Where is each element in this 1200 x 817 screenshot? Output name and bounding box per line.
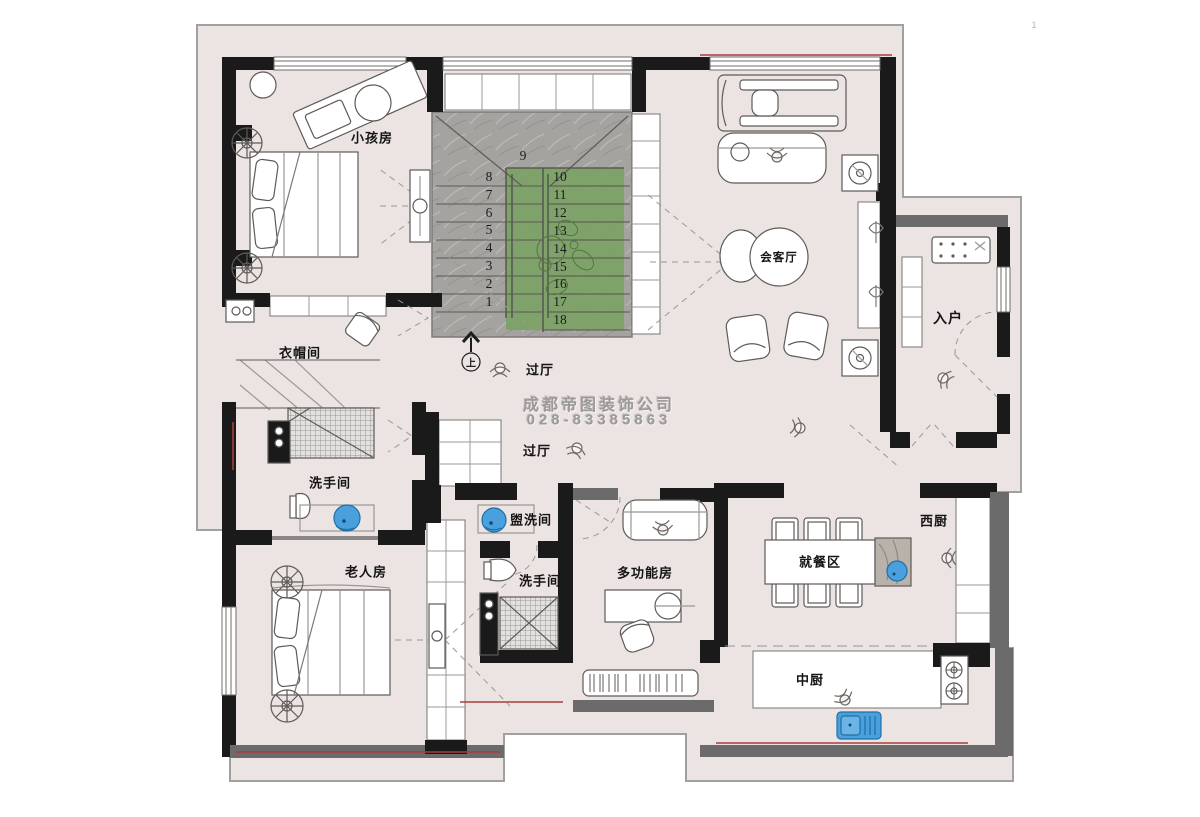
staircase — [432, 112, 632, 371]
stove — [941, 656, 968, 704]
window-entry-right — [997, 267, 1010, 312]
stair-number: 3 — [486, 258, 493, 274]
stair-number: 10 — [553, 169, 567, 185]
kids-tv — [410, 170, 430, 242]
stair-number: 2 — [486, 276, 493, 292]
room-label-bathroom-middle: 洗手间 — [519, 571, 561, 590]
speaker-icon — [842, 155, 878, 191]
room-label-west-kitchen: 西厨 — [920, 511, 948, 530]
washer-icon — [226, 300, 254, 322]
stair-number: 9 — [520, 148, 527, 164]
stair-number: 4 — [486, 240, 493, 256]
kids-chair — [355, 85, 391, 121]
room-label-multifunction: 多功能房 — [617, 563, 673, 582]
stair-number: 16 — [553, 276, 567, 292]
ceiling-fan-icon — [271, 690, 303, 722]
stair-number: 7 — [486, 187, 493, 203]
speaker-icon — [842, 340, 878, 376]
stair-number: 12 — [553, 205, 567, 221]
room-label-hall-upper: 过厅 — [526, 360, 554, 379]
kids-stool — [250, 72, 276, 98]
stair-up-label: 上 — [466, 355, 476, 370]
room-label-cloakroom: 衣帽间 — [279, 343, 321, 362]
stair-number: 5 — [486, 222, 493, 238]
stair-number: 11 — [554, 187, 567, 203]
room-label-chinese-kitchen: 中厨 — [796, 670, 824, 689]
room-label-entry: 入户 — [933, 308, 963, 328]
stair-number: 6 — [486, 205, 493, 221]
stair-number: 14 — [553, 241, 567, 257]
elder-tv — [429, 604, 445, 668]
vanity-left — [268, 421, 290, 463]
entry-bench — [932, 237, 990, 263]
ceiling-fan-icon — [232, 253, 262, 283]
dining-island — [875, 538, 911, 586]
ceiling-fan-icon — [232, 128, 262, 158]
window-elder-left — [222, 607, 236, 695]
corner-mark: 1 — [1031, 20, 1036, 30]
kids-bed — [250, 152, 358, 257]
kitchen-sink-blue — [837, 712, 881, 739]
room-label-washroom: 盥洗间 — [510, 510, 552, 529]
elder-bed — [272, 585, 390, 695]
room-label-bathroom-left: 洗手间 — [309, 473, 351, 492]
room-label-hall-lower: 过厅 — [523, 441, 551, 460]
basin-blue-left — [334, 505, 360, 531]
basin-blue-washroom — [482, 508, 506, 532]
multi-desk — [605, 590, 695, 622]
stair-number: 18 — [553, 312, 567, 328]
stair-number: 13 — [553, 223, 567, 239]
stair-number: 17 — [553, 294, 567, 310]
floorplan-page: 小孩房 会客厅 入户 衣帽间 过厅 过厅 洗手间 老人房 盥洗间 洗手间 多功能… — [0, 0, 1200, 817]
room-label-dining: 就餐区 — [799, 552, 841, 571]
ceiling-fan-icon — [271, 566, 303, 598]
stair-number: 8 — [486, 169, 493, 185]
room-label-elder-room: 老人房 — [345, 562, 387, 581]
window-living-top — [710, 57, 880, 70]
room-label-kids-room: 小孩房 — [351, 128, 393, 147]
living-armchair — [725, 313, 771, 362]
window-kids-top — [274, 57, 406, 70]
stair-number: 15 — [553, 259, 567, 275]
watermark-phone: 028-83385863 — [527, 412, 672, 429]
room-label-reception: 会客厅 — [760, 249, 798, 265]
living-armchair — [782, 311, 829, 361]
vanity-middle — [480, 593, 498, 655]
window-stair-top — [443, 57, 632, 70]
radiator — [583, 670, 698, 696]
stair-number: 1 — [486, 294, 493, 310]
